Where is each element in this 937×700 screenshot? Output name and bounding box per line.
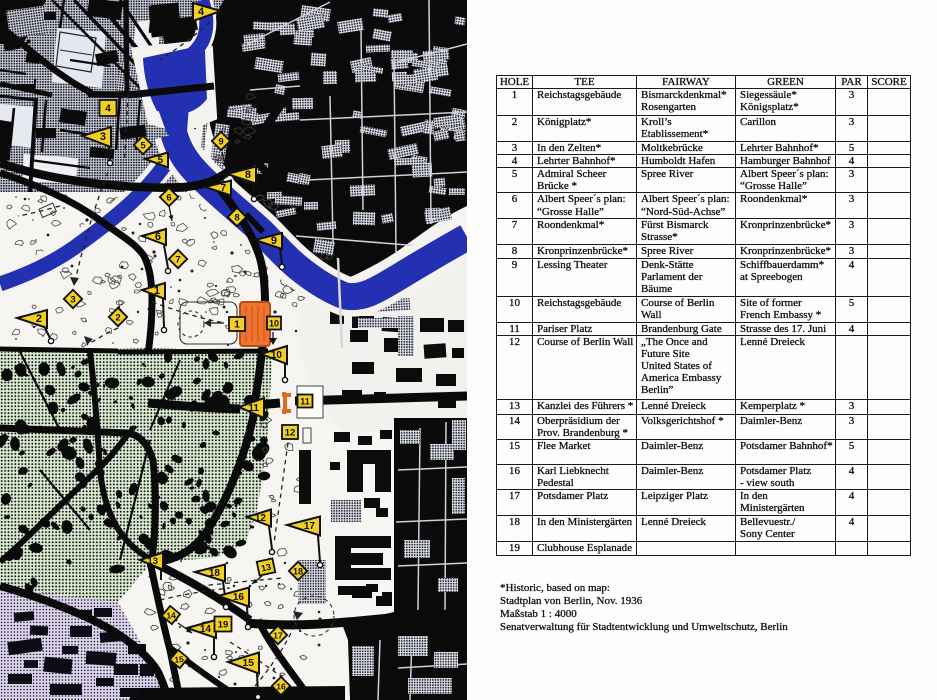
svg-text:10: 10 (271, 350, 283, 361)
svg-text:4: 4 (105, 104, 111, 115)
svg-text:3: 3 (100, 131, 106, 143)
svg-text:18: 18 (209, 568, 221, 579)
svg-text:9: 9 (271, 235, 277, 247)
svg-text:13: 13 (260, 562, 272, 574)
svg-text:2: 2 (115, 312, 120, 323)
svg-text:6: 6 (155, 231, 161, 243)
svg-text:1: 1 (154, 285, 160, 297)
svg-text:15: 15 (174, 654, 185, 665)
svg-text:17: 17 (304, 521, 316, 532)
svg-text:14: 14 (166, 610, 177, 621)
svg-text:18: 18 (293, 566, 303, 576)
svg-text:11: 11 (248, 403, 259, 414)
svg-text:2: 2 (36, 313, 42, 325)
svg-text:14: 14 (200, 624, 212, 635)
svg-text:3: 3 (70, 294, 75, 305)
svg-text:5: 5 (140, 140, 146, 151)
svg-text:6: 6 (166, 192, 171, 203)
svg-text:7: 7 (220, 183, 226, 194)
svg-text:11: 11 (300, 397, 310, 407)
svg-text:13: 13 (147, 556, 158, 567)
svg-text:1: 1 (234, 320, 240, 331)
svg-text:10: 10 (269, 319, 279, 329)
svg-text:12: 12 (285, 428, 296, 439)
svg-text:19: 19 (218, 620, 229, 631)
svg-text:9: 9 (218, 136, 223, 147)
svg-text:7: 7 (175, 254, 180, 265)
svg-text:17: 17 (273, 630, 283, 640)
svg-text:12: 12 (255, 513, 267, 524)
svg-text:8: 8 (234, 212, 239, 223)
svg-text:16: 16 (276, 681, 286, 691)
svg-text:16: 16 (233, 592, 245, 603)
svg-text:15: 15 (242, 657, 254, 669)
svg-text:8: 8 (245, 169, 251, 181)
svg-text:4: 4 (198, 6, 205, 18)
svg-text:5: 5 (157, 155, 163, 166)
